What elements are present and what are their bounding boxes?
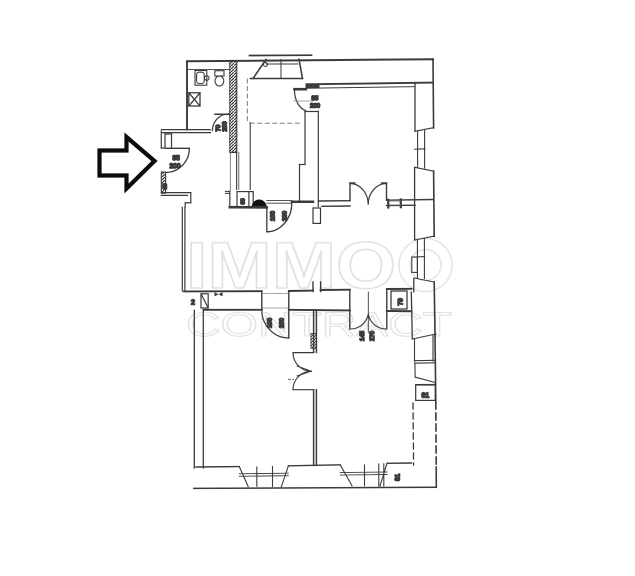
svg-text:85: 85	[312, 95, 319, 102]
svg-text:60: 60	[241, 198, 247, 204]
svg-text:25: 25	[163, 183, 169, 189]
svg-text:2: 2	[191, 300, 195, 307]
svg-text:200: 200	[279, 317, 286, 328]
svg-text:145: 145	[359, 330, 366, 341]
svg-text:200: 200	[222, 121, 229, 132]
svg-text:81: 81	[422, 393, 430, 400]
svg-text:200: 200	[170, 163, 181, 170]
svg-text:100: 100	[267, 317, 274, 328]
svg-text:79: 79	[398, 298, 405, 306]
svg-text:85: 85	[173, 155, 181, 162]
svg-text:200: 200	[310, 103, 321, 110]
svg-text:100: 100	[270, 210, 277, 221]
svg-text:270: 270	[369, 330, 376, 341]
svg-text:70: 70	[215, 124, 222, 131]
svg-text:200: 200	[282, 210, 289, 221]
svg-text:81: 81	[395, 473, 402, 481]
